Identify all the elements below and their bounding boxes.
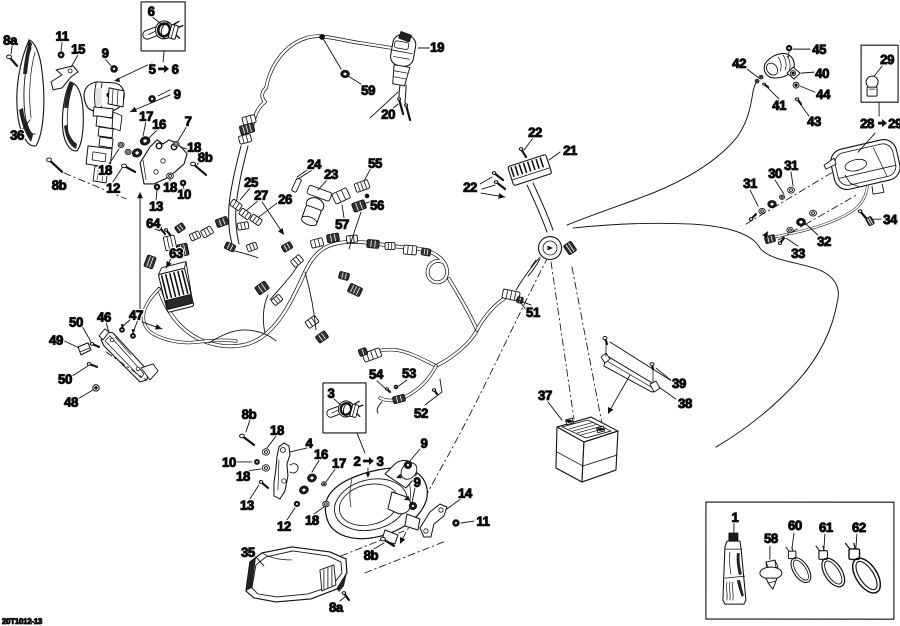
svg-text:61: 61 xyxy=(819,520,833,535)
svg-text:22: 22 xyxy=(528,125,542,140)
svg-text:20T1012-13: 20T1012-13 xyxy=(2,617,43,626)
svg-text:22: 22 xyxy=(463,180,477,195)
svg-text:3: 3 xyxy=(376,454,383,469)
svg-text:32: 32 xyxy=(817,234,831,249)
svg-text:12: 12 xyxy=(277,519,291,534)
svg-text:39: 39 xyxy=(672,376,686,391)
svg-text:12: 12 xyxy=(106,181,120,196)
svg-text:3: 3 xyxy=(328,386,335,401)
svg-text:29: 29 xyxy=(880,52,894,67)
svg-text:26: 26 xyxy=(278,192,292,207)
svg-text:52: 52 xyxy=(414,406,428,421)
svg-text:58: 58 xyxy=(764,531,778,546)
svg-text:5: 5 xyxy=(149,62,156,77)
svg-text:30: 30 xyxy=(768,166,782,181)
svg-text:63: 63 xyxy=(169,246,183,261)
svg-text:9: 9 xyxy=(413,475,420,490)
svg-text:40: 40 xyxy=(815,66,829,81)
svg-text:13: 13 xyxy=(240,498,254,513)
svg-text:34: 34 xyxy=(883,212,898,227)
svg-text:62: 62 xyxy=(852,520,866,535)
svg-text:16: 16 xyxy=(314,447,328,462)
svg-text:24: 24 xyxy=(307,157,322,172)
svg-text:56: 56 xyxy=(370,198,384,213)
svg-text:23: 23 xyxy=(324,167,338,182)
svg-text:51: 51 xyxy=(526,305,540,320)
svg-text:18: 18 xyxy=(187,140,201,155)
svg-text:29: 29 xyxy=(888,116,900,131)
svg-text:10: 10 xyxy=(177,187,191,202)
svg-text:4: 4 xyxy=(305,436,313,451)
svg-text:18: 18 xyxy=(163,180,177,195)
svg-text:59: 59 xyxy=(361,83,375,98)
svg-text:16: 16 xyxy=(152,117,166,132)
svg-text:45: 45 xyxy=(812,42,826,57)
svg-text:18: 18 xyxy=(270,423,284,438)
svg-text:8b: 8b xyxy=(364,548,379,563)
svg-text:43: 43 xyxy=(807,114,821,129)
svg-text:6: 6 xyxy=(148,4,155,19)
svg-text:9: 9 xyxy=(174,87,181,102)
svg-text:48: 48 xyxy=(64,395,78,410)
svg-text:54: 54 xyxy=(369,367,384,382)
svg-text:18: 18 xyxy=(236,469,250,484)
svg-text:14: 14 xyxy=(458,486,473,501)
svg-text:36: 36 xyxy=(10,128,24,143)
svg-text:28: 28 xyxy=(860,116,874,131)
svg-text:7: 7 xyxy=(185,114,192,129)
svg-text:50: 50 xyxy=(58,372,72,387)
svg-text:53: 53 xyxy=(402,366,416,381)
svg-text:1: 1 xyxy=(731,510,738,525)
svg-text:11: 11 xyxy=(56,29,69,44)
svg-text:8a: 8a xyxy=(329,600,344,615)
svg-text:46: 46 xyxy=(97,310,111,325)
svg-text:8a: 8a xyxy=(3,33,18,48)
svg-text:64: 64 xyxy=(146,216,161,231)
svg-text:15: 15 xyxy=(71,42,85,57)
svg-text:17: 17 xyxy=(332,456,346,471)
svg-text:2: 2 xyxy=(353,454,360,469)
svg-text:55: 55 xyxy=(368,156,382,171)
svg-text:60: 60 xyxy=(788,518,802,533)
svg-text:31: 31 xyxy=(784,158,798,173)
svg-text:35: 35 xyxy=(241,545,255,560)
svg-text:33: 33 xyxy=(791,246,805,261)
svg-text:42: 42 xyxy=(732,56,746,71)
svg-text:19: 19 xyxy=(430,40,444,55)
svg-text:27: 27 xyxy=(254,188,268,203)
svg-text:38: 38 xyxy=(678,396,692,411)
svg-text:13: 13 xyxy=(149,199,163,214)
svg-text:44: 44 xyxy=(816,87,831,102)
svg-text:8b: 8b xyxy=(242,407,257,422)
svg-text:41: 41 xyxy=(772,98,786,113)
svg-text:47: 47 xyxy=(129,308,143,323)
svg-text:49: 49 xyxy=(49,333,63,348)
svg-text:11: 11 xyxy=(476,514,489,529)
svg-text:31: 31 xyxy=(743,176,757,191)
svg-text:57: 57 xyxy=(335,217,349,232)
svg-text:37: 37 xyxy=(538,388,552,403)
svg-text:8b: 8b xyxy=(52,178,67,193)
svg-text:18: 18 xyxy=(305,513,319,528)
svg-text:10: 10 xyxy=(222,455,236,470)
svg-text:21: 21 xyxy=(563,143,577,158)
svg-text:18: 18 xyxy=(98,163,112,178)
svg-text:9: 9 xyxy=(102,46,109,61)
svg-text:50: 50 xyxy=(69,315,83,330)
svg-text:17: 17 xyxy=(139,109,153,124)
svg-text:20: 20 xyxy=(381,107,395,122)
svg-text:6: 6 xyxy=(172,62,179,77)
svg-text:9: 9 xyxy=(420,436,427,451)
